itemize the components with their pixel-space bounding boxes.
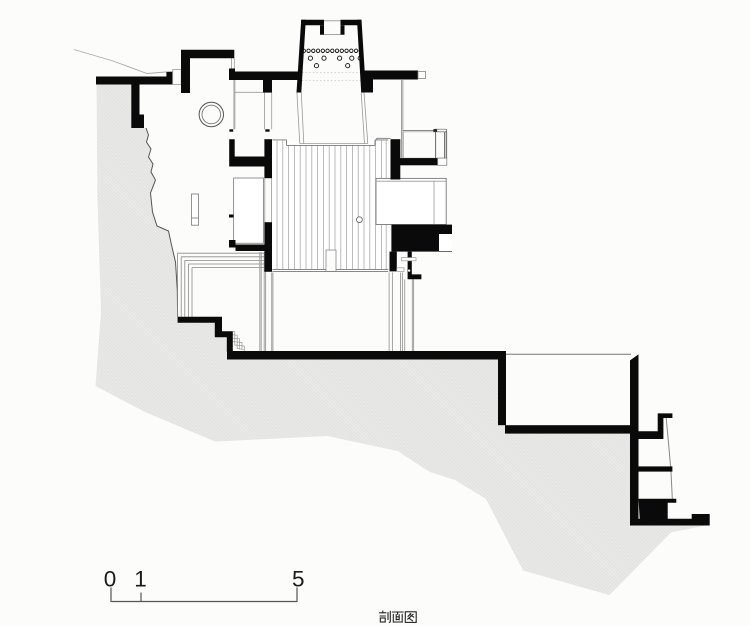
svg-text:1: 1 xyxy=(134,567,147,592)
svg-text:5: 5 xyxy=(292,567,305,592)
svg-text:0: 0 xyxy=(104,567,117,592)
